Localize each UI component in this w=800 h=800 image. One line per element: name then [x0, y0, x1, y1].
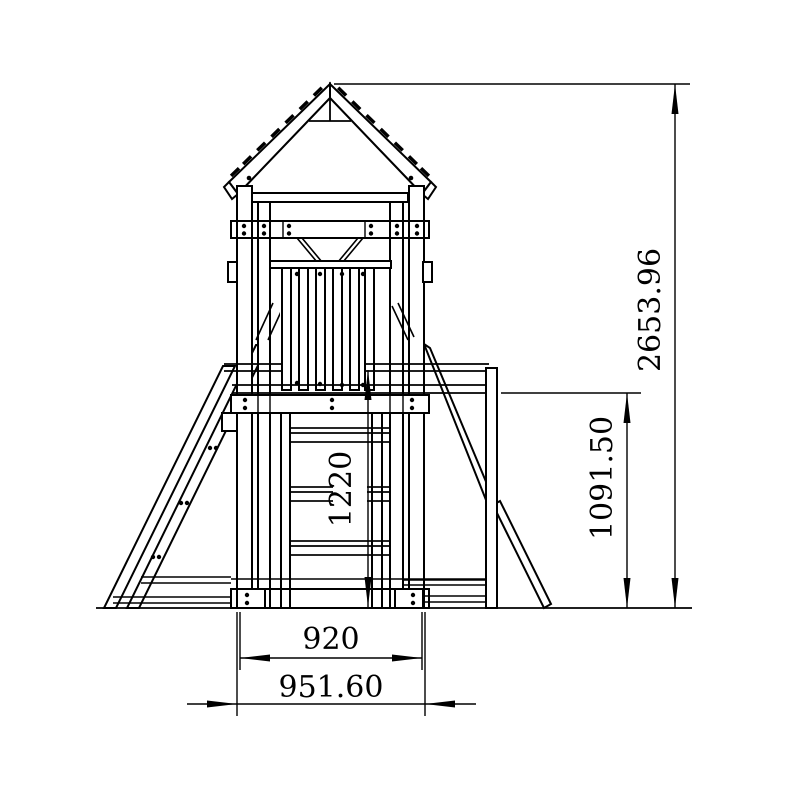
brace-bracket [222, 413, 237, 431]
dim-platform-height: 1091.50 [501, 393, 641, 608]
right-frame-post [486, 368, 497, 608]
arrow-right-icon [207, 701, 237, 708]
arrow-left-icon [425, 701, 455, 708]
dim-ladder-height-label: 1220 [324, 451, 359, 527]
top-plate [252, 193, 408, 202]
side-tab-right [423, 262, 432, 282]
dim-inner-width: 920 [240, 612, 422, 670]
arrow-down-icon [672, 578, 679, 608]
arrow-up-icon [624, 393, 631, 423]
base-band [231, 589, 429, 608]
roof-panel-right [330, 84, 431, 194]
roof [224, 84, 436, 199]
cad-drawing-page: 2653.96 1091.50 1220 920 [0, 0, 800, 800]
base-plate-left [237, 589, 265, 608]
dim-inner-width-label: 920 [302, 622, 359, 657]
playset-technical-drawing: 2653.96 1091.50 1220 920 [0, 0, 800, 800]
dim-total-height-label: 2653.96 [633, 248, 668, 372]
dim-outer-width-label: 951.60 [279, 670, 384, 705]
roof-panel-left [229, 84, 330, 194]
side-tab-left [228, 262, 237, 282]
base-plate-right [395, 589, 423, 608]
arrow-right-icon [392, 655, 422, 662]
arrow-down-icon [624, 578, 631, 608]
arrow-up-icon [672, 84, 679, 114]
dim-platform-height-label: 1091.50 [585, 416, 620, 540]
arrow-left-icon [240, 655, 270, 662]
knee-braces [297, 238, 363, 262]
balustrade-top-rail [270, 261, 391, 268]
arrow-down-icon [365, 577, 372, 607]
